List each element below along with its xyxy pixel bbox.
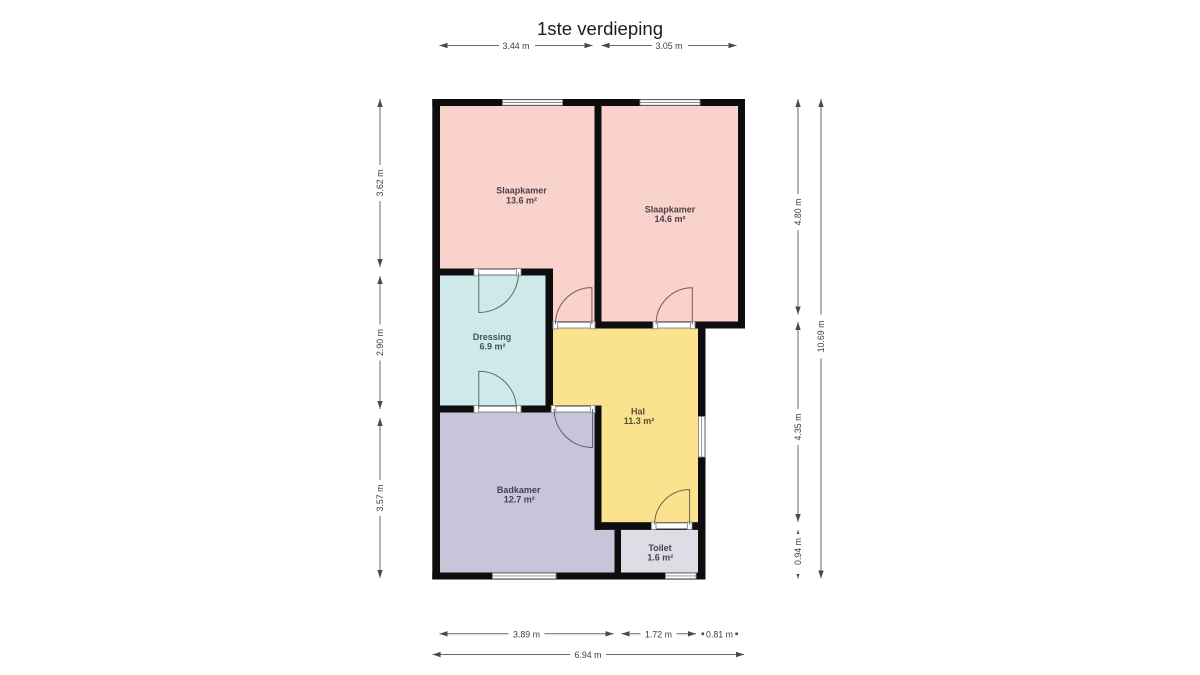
svg-text:14.6 m²: 14.6 m²	[654, 214, 685, 224]
svg-text:Hal: Hal	[631, 407, 645, 417]
svg-text:12.7 m²: 12.7 m²	[504, 495, 535, 505]
svg-text:0.94 m: 0.94 m	[793, 538, 803, 565]
svg-text:3.57 m: 3.57 m	[375, 485, 385, 512]
svg-text:1.6 m²: 1.6 m²	[647, 553, 673, 563]
svg-text:3.05 m: 3.05 m	[656, 41, 683, 51]
svg-text:Slaapkamer: Slaapkamer	[645, 204, 696, 214]
svg-text:3.89 m: 3.89 m	[513, 629, 540, 639]
svg-text:13.6 m²: 13.6 m²	[506, 195, 537, 205]
svg-text:2.90 m: 2.90 m	[375, 329, 385, 356]
svg-text:Toilet: Toilet	[648, 543, 671, 553]
svg-text:Dressing: Dressing	[473, 332, 512, 342]
svg-text:1ste verdieping: 1ste verdieping	[537, 18, 663, 39]
svg-text:1.72 m: 1.72 m	[645, 629, 672, 639]
svg-text:4.35 m: 4.35 m	[793, 414, 803, 441]
svg-text:4.80 m: 4.80 m	[793, 199, 803, 226]
svg-text:3.62 m: 3.62 m	[375, 170, 385, 197]
svg-text:6.94 m: 6.94 m	[575, 650, 602, 660]
svg-text:11.3 m²: 11.3 m²	[624, 416, 655, 426]
svg-text:Slaapkamer: Slaapkamer	[496, 186, 547, 196]
svg-text:0.81 m: 0.81 m	[706, 629, 733, 639]
svg-text:10.69 m: 10.69 m	[816, 321, 826, 353]
svg-text:6.9 m²: 6.9 m²	[479, 342, 505, 352]
svg-text:Badkamer: Badkamer	[497, 485, 541, 495]
svg-text:3.44 m: 3.44 m	[503, 41, 530, 51]
